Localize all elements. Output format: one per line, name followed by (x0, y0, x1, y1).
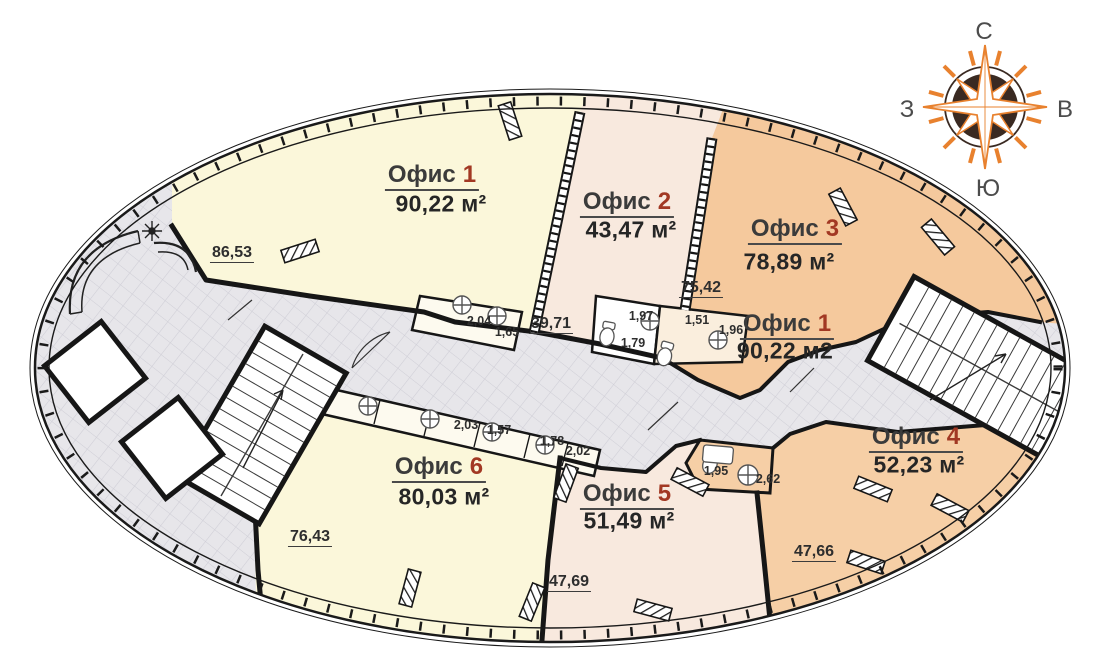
dim-1-95: 1,95 (704, 465, 728, 478)
dim-1-51: 1,51 (685, 314, 709, 327)
office-1-right-title: Офис1 (740, 312, 834, 340)
area-stamp-47-66: 47,66 (792, 544, 836, 562)
dim-1-65: 1,65 (495, 326, 519, 339)
area-stamp-86-53: 86,53 (210, 245, 254, 263)
office-4-number: 4 (947, 423, 960, 450)
dim-2-62: 2,62 (756, 473, 780, 486)
office-2-area: 43,47 м² (585, 219, 676, 242)
area-stamp-47-69: 47,69 (547, 574, 591, 592)
office-6-number: 6 (470, 453, 483, 480)
office-5-area: 51,49 м² (583, 510, 674, 533)
office-6-name: Офис (395, 453, 463, 480)
office-6-area: 80,03 м² (398, 486, 489, 509)
office-2-title: Офис2 (580, 190, 674, 218)
compass-south-label: Ю (976, 175, 1000, 202)
dim-1-97: 1,97 (629, 310, 653, 323)
office-4-title: Офис4 (869, 425, 963, 453)
office-3-area: 78,89 м² (743, 251, 834, 274)
office-2-name: Офис (583, 188, 651, 215)
dim-2-03: 2,03 (454, 419, 478, 432)
dim-1-96: 1,96 (719, 324, 743, 337)
dim-2-04: 2,04 (467, 315, 491, 328)
office-3-name: Офис (751, 215, 819, 242)
office-4-name: Офис (872, 423, 940, 450)
office-1-name: Офис (388, 161, 456, 188)
compass-north-label: С (975, 18, 992, 45)
office-5-name: Офис (583, 480, 651, 507)
plant-icon (142, 221, 162, 241)
compass-rose: С В Ю З (900, 18, 1073, 202)
office-1-number: 1 (463, 161, 476, 188)
office-1-area: 90,22 м² (395, 193, 486, 216)
compass-star-axes (923, 45, 1047, 169)
office-1-right-name: Офис (743, 310, 811, 337)
dim-1-57: 1,57 (487, 424, 511, 437)
area-stamp-75-42: 75,42 (679, 280, 723, 298)
area-stamp-76-43: 76,43 (288, 529, 332, 547)
floor-plan-page: С В Ю З Офис1 90,22 м² Офис2 43,47 м² Оф… (0, 0, 1100, 666)
compass-east-label: В (1057, 96, 1073, 123)
office-1-title: Офис1 (385, 163, 479, 191)
office-1-right-area: 90,22 м2 (737, 340, 833, 363)
office-5-title: Офис5 (580, 482, 674, 510)
office-4-area: 52,23 м² (873, 454, 964, 477)
office-6-title: Офис6 (392, 455, 486, 483)
office-3-title: Офис3 (748, 217, 842, 245)
area-stamp-39-71: 39,71 (529, 316, 573, 334)
office-5-number: 5 (658, 480, 671, 507)
office-1-right-number: 1 (818, 310, 831, 337)
dim-2-02: 2,02 (566, 445, 590, 458)
office-3-number: 3 (826, 215, 839, 242)
compass-west-label: З (900, 96, 915, 123)
dim-1-79: 1,79 (621, 337, 645, 350)
dim-1-78: 1,78 (540, 435, 564, 448)
office-2-number: 2 (658, 188, 671, 215)
